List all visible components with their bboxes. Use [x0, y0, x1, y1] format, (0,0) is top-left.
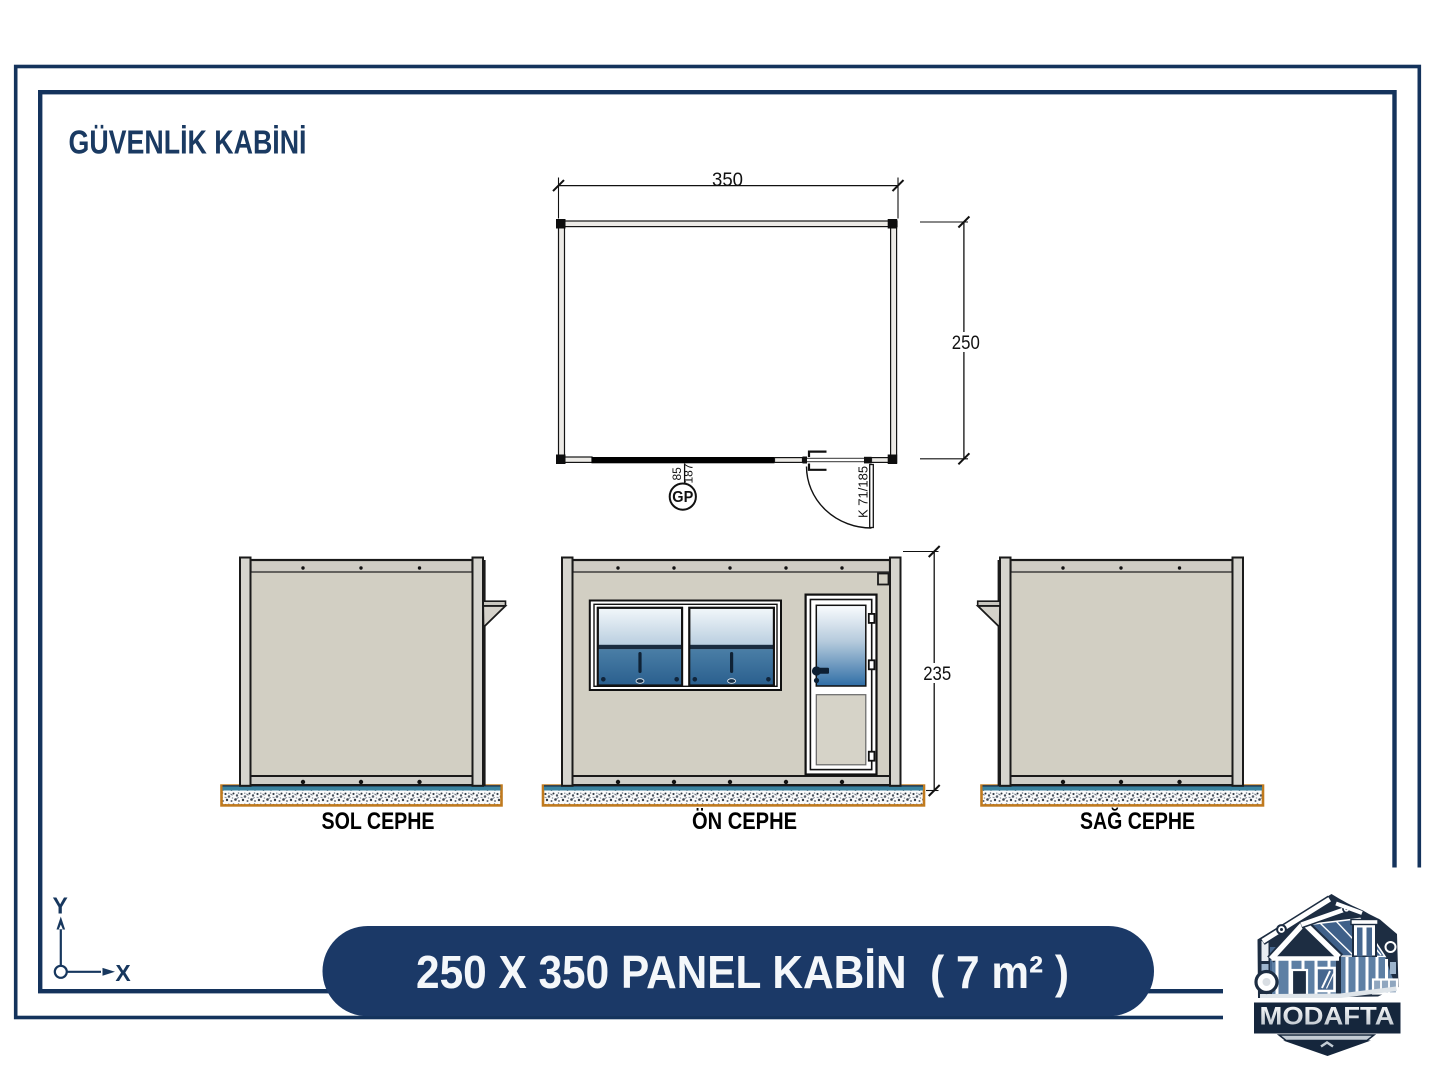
- svg-text:K 71/185: K 71/185: [855, 466, 870, 518]
- svg-text:250: 250: [952, 332, 980, 354]
- svg-text:250 X 350 PANEL KABİN ( 7 m²: 250 X 350 PANEL KABİN ( 7 m² ): [416, 946, 1069, 998]
- svg-text:SOL CEPHE: SOL CEPHE: [322, 808, 435, 835]
- svg-text:MODAFTA: MODAFTA: [1260, 1003, 1395, 1031]
- svg-text:350: 350: [712, 169, 743, 191]
- svg-text:235: 235: [923, 663, 951, 685]
- svg-text:Y: Y: [53, 893, 68, 919]
- svg-text:SAĞ CEPHE: SAĞ CEPHE: [1080, 807, 1195, 835]
- svg-text:ÖN CEPHE: ÖN CEPHE: [692, 808, 797, 835]
- svg-text:GP: GP: [672, 489, 693, 506]
- svg-text:X: X: [115, 960, 131, 986]
- svg-text:GÜVENLİK KABİNİ: GÜVENLİK KABİNİ: [69, 123, 307, 160]
- svg-text:187: 187: [682, 463, 696, 483]
